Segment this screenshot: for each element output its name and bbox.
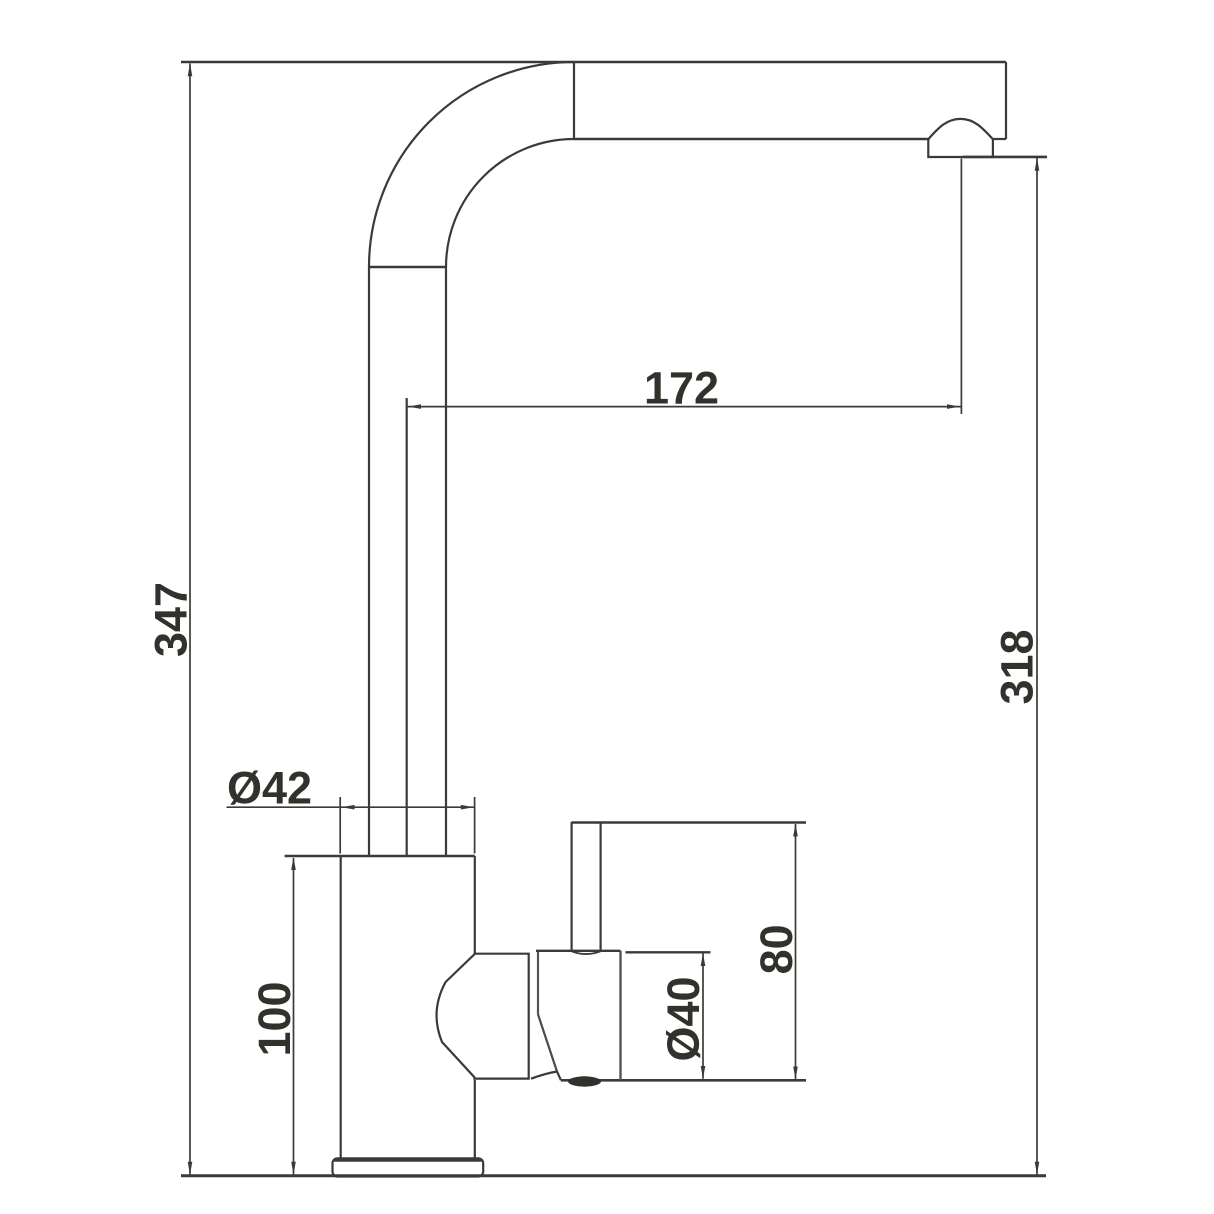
svg-text:80: 80 bbox=[751, 924, 802, 974]
svg-text:172: 172 bbox=[644, 363, 719, 414]
svg-text:Ø42: Ø42 bbox=[227, 763, 312, 814]
svg-text:318: 318 bbox=[992, 629, 1043, 704]
svg-text:347: 347 bbox=[145, 582, 196, 657]
svg-text:100: 100 bbox=[249, 981, 300, 1056]
svg-text:Ø40: Ø40 bbox=[658, 976, 709, 1061]
